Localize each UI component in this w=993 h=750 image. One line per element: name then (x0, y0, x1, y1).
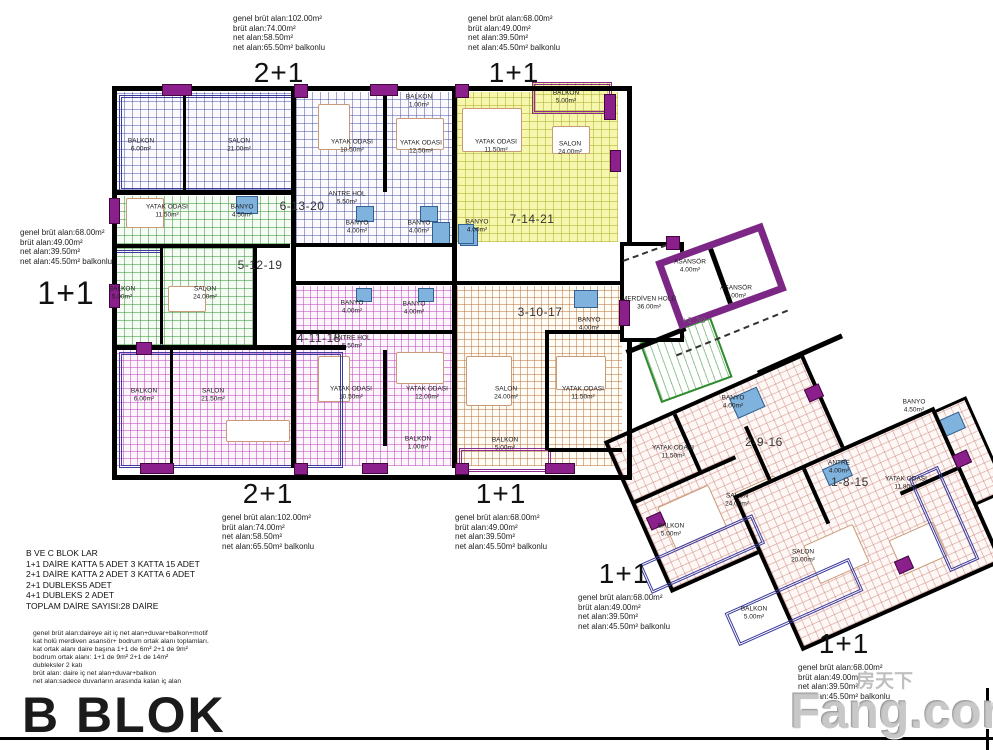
window-accent (136, 342, 152, 355)
room-label: BALKON1.00m² (405, 436, 431, 451)
wall (291, 90, 296, 468)
unit-number-label: 3-10-17 (518, 305, 563, 319)
area-lines: genel brüt alan:102.00m²brüt alan:74.00m… (233, 14, 325, 52)
window-accent (455, 84, 469, 98)
room-label: SALON24.00m² (558, 141, 582, 156)
summary-line: 2+1 DAİRE KATTA 2 ADET 3 KATTA 6 ADET (26, 569, 200, 580)
window-accent (362, 463, 388, 474)
room-label: MERDİVEN HOLÜ36.00m² (622, 296, 676, 311)
window-accent (162, 84, 192, 96)
room-label: BALKON6.00m² (131, 388, 157, 403)
room-label: BALKON5.00m² (741, 606, 767, 621)
area-info-block: genel brüt alan:68.00m²brüt alan:49.00m²… (20, 228, 112, 312)
room-label: BANYO4.00m² (578, 317, 601, 332)
unit-type-label: 1+1 (455, 478, 547, 510)
area-lines: genel brüt alan:102.00m²brüt alan:74.00m… (222, 513, 314, 551)
area-info-block: 2+1genel brüt alan:102.00m²brüt alan:74.… (222, 478, 314, 551)
room-label: BANYO4.50m² (903, 399, 926, 414)
summary-line: B VE C BLOK LAR (26, 548, 200, 559)
block-summary: B VE C BLOK LAR 1+1 DAİRE KATTA 5 ADET 3… (26, 548, 200, 611)
summary-line: 4+1 DUBLEKS 2 ADET (26, 590, 200, 601)
room-label: SALON24.00m² (494, 386, 518, 401)
frame-line (986, 688, 989, 750)
room-label: YATAK ODASI11.80m² (885, 476, 927, 491)
note-line: kat ortak alanı daire başına 1+1 de 6m² … (33, 646, 209, 654)
room-label: YATAK ODASI11.50m² (146, 204, 188, 219)
room-label: YATAK ODASI12.00m² (406, 386, 448, 401)
page-title: B BLOK (22, 686, 226, 744)
room-label: YATAK ODASI10.50m² (331, 139, 373, 154)
wall (673, 413, 702, 471)
unit-number-label: 6-13-20 (280, 199, 325, 213)
note-line: brüt alan: daire iç net alan+duvar+balko… (33, 670, 209, 678)
wall (183, 94, 186, 190)
room-label: BANYO4.00m² (466, 219, 489, 234)
room-label: BALKON5.00m² (492, 437, 518, 452)
area-lines: genel brüt alan:68.00m²brüt alan:49.00m²… (578, 593, 670, 631)
summary-line: 1+1 DAİRE KATTA 5 ADET 3 KATTA 15 ADET (26, 559, 200, 570)
wall (548, 448, 622, 452)
area-lines: genel brüt alan:68.00m²brüt alan:49.00m²… (798, 663, 890, 701)
unit-type-label: 2+1 (222, 478, 314, 510)
area-lines: genel brüt alan:68.00m²brüt alan:49.00m²… (20, 228, 112, 266)
unit-number-label: 4-11-18 (297, 331, 341, 345)
room-label: BALKON1.00m² (406, 94, 432, 109)
note-line: bodrum ortak alanı: 1+1 de 9m² 2+1 de 14… (33, 654, 209, 662)
window-accent (294, 463, 308, 475)
window-accent (140, 463, 174, 474)
room-label: SALON21.00m² (227, 138, 251, 153)
room-label: SALON24.00m² (193, 286, 217, 301)
unit-type-label: 1+1 (468, 57, 560, 89)
unit-number-label: 1-8-15 (831, 475, 869, 489)
wall (383, 94, 387, 192)
room-label: ANTRE HOL5.50m² (328, 191, 365, 206)
unit-type-label: 2+1 (233, 57, 325, 89)
window-accent (370, 84, 398, 96)
room-label: BANYO4.00m² (722, 395, 745, 410)
unit-type-label: 1+1 (798, 628, 890, 660)
window-accent (610, 150, 621, 172)
unit-number-label: +1.30 (682, 315, 706, 325)
window-accent (545, 463, 575, 474)
room-label: SALON24.00m² (725, 493, 749, 508)
note-line: dubleksler 2 katı (33, 662, 209, 670)
area-info-block: genel brüt alan:102.00m²brüt alan:74.00m… (233, 14, 325, 89)
room-label: BALKON5.00m² (109, 286, 135, 301)
room-label: YATAK ODASI11.50m² (562, 386, 604, 401)
unit-number-label: 2-9-16 (745, 435, 783, 449)
window-accent (455, 463, 469, 475)
room-label: ASANSÖR4.00m² (674, 259, 706, 274)
room-label: ANTRE4.00m² (828, 460, 850, 475)
area-info-block: 1+1genel brüt alan:68.00m²brüt alan:49.0… (578, 558, 670, 631)
room-label: BANYO4.00m² (346, 220, 369, 235)
unit-type-label: 1+1 (578, 558, 670, 590)
window-accent (666, 236, 680, 250)
wall (170, 350, 173, 464)
room-label: BANYO4.00m² (341, 300, 364, 315)
window-accent (604, 94, 616, 120)
note-line: net alan:sadece duvarların arasında kala… (33, 678, 209, 686)
area-info-block: genel brüt alan:68.00m²brüt alan:49.00m²… (468, 14, 560, 89)
unit-number-label: 5-12-19 (238, 258, 283, 272)
area-info-block: 1+1genel brüt alan:68.00m²brüt alan:49.0… (455, 478, 547, 551)
room-label: BANYO4.00m² (403, 301, 426, 316)
summary-line: 2+1 DUBLEKS5 ADET (26, 580, 200, 591)
floor-plan-canvas: BALKON6.00m²SALON21.00m²BALKON1.00m²YATA… (0, 0, 993, 750)
wall (545, 330, 549, 450)
room-label: SALON21.50m² (201, 388, 225, 403)
room-label: BANYO4.50m² (231, 204, 254, 219)
unit-number-label: 7-14-21 (510, 212, 555, 226)
wall (114, 244, 290, 248)
room-label: BALKON6.00m² (128, 138, 154, 153)
room-label: YATAK ODASI11.50m² (652, 445, 694, 460)
area-lines: genel brüt alan:68.00m²brüt alan:49.00m²… (468, 14, 560, 52)
wall (383, 350, 387, 446)
window-accent (109, 198, 120, 224)
room-label: ASANSÖR4.00m² (720, 285, 752, 300)
area-lines: genel brüt alan:68.00m²brüt alan:49.00m²… (455, 513, 547, 551)
area-info-block: 1+1genel brüt alan:68.00m²brüt alan:49.0… (798, 628, 890, 701)
wall (114, 190, 294, 195)
wall (160, 248, 163, 344)
room-label: SALON20.00m² (791, 549, 815, 564)
room-label: BANYO4.00m² (408, 220, 431, 235)
note-line: genel brüt alan:daireye ait iç net alan+… (33, 630, 209, 638)
area-definitions-notes: genel brüt alan:daireye ait iç net alan+… (33, 630, 209, 686)
room-label: YATAK ODASI12.50m² (400, 140, 442, 155)
room-label: BALKON5.00m² (553, 90, 579, 105)
room-label: YATAK ODASI11.50m² (475, 139, 517, 154)
unit-type-label: 1+1 (20, 275, 112, 312)
note-line: kat holü merdiven asansör+ bodrum ortak … (33, 638, 209, 646)
wall (452, 90, 457, 468)
wall (296, 243, 454, 247)
room-label: BALKON5.00m² (658, 523, 684, 538)
wall (296, 281, 624, 285)
summary-line: TOPLAM DAİRE SAYISI:28 DAİRE (26, 601, 200, 612)
room-label: YATAK ODASI10.50m² (330, 386, 372, 401)
